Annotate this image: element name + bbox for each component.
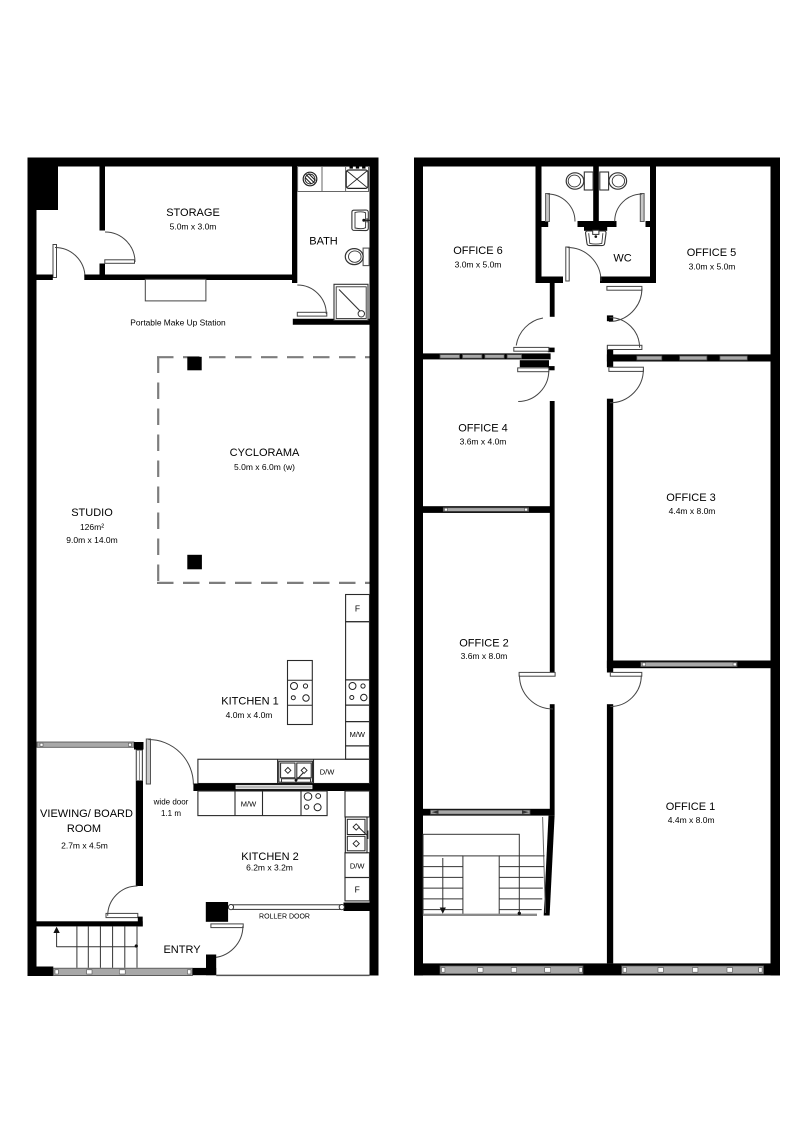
svg-text:WC: WC — [613, 252, 631, 264]
svg-text:OFFICE 4: OFFICE 4 — [458, 423, 508, 435]
svg-text:KITCHEN 1: KITCHEN 1 — [221, 695, 278, 707]
svg-text:ENTRY: ENTRY — [163, 944, 201, 956]
svg-text:M/W: M/W — [350, 730, 366, 739]
svg-text:3.0m x 5.0m: 3.0m x 5.0m — [689, 262, 736, 272]
svg-text:3.6m x 8.0m: 3.6m x 8.0m — [461, 651, 508, 661]
svg-text:Portable Make Up Station: Portable Make Up Station — [130, 318, 226, 328]
svg-text:OFFICE 1: OFFICE 1 — [666, 801, 716, 813]
svg-text:4.4m x 8.0m: 4.4m x 8.0m — [669, 506, 716, 516]
svg-text:STUDIO: STUDIO — [71, 507, 113, 519]
svg-text:BATH: BATH — [309, 236, 338, 248]
svg-text:D/W: D/W — [350, 862, 366, 871]
svg-text:4.0m x 4.0m: 4.0m x 4.0m — [226, 710, 273, 720]
svg-text:M/W: M/W — [241, 800, 257, 809]
svg-text:5.0m x 3.0m: 5.0m x 3.0m — [170, 222, 217, 232]
svg-text:2.7m x 4.5m: 2.7m x 4.5m — [61, 841, 108, 851]
svg-text:6.2m x 3.2m: 6.2m x 3.2m — [246, 863, 293, 873]
svg-text:OFFICE 6: OFFICE 6 — [453, 245, 503, 257]
svg-text:STORAGE: STORAGE — [166, 207, 220, 219]
svg-text:9.0m x 14.0m: 9.0m x 14.0m — [66, 535, 118, 545]
svg-text:OFFICE 5: OFFICE 5 — [687, 247, 737, 259]
svg-text:VIEWING/ BOARD: VIEWING/ BOARD — [40, 808, 133, 820]
svg-text:OFFICE 2: OFFICE 2 — [459, 638, 509, 650]
svg-text:ROLLER DOOR: ROLLER DOOR — [259, 914, 310, 921]
svg-text:F: F — [355, 604, 360, 614]
svg-text:wide door: wide door — [153, 798, 189, 807]
svg-text:126m²: 126m² — [80, 522, 104, 532]
svg-text:1.1 m: 1.1 m — [161, 809, 181, 818]
svg-text:F: F — [355, 885, 360, 895]
svg-text:3.6m x 4.0m: 3.6m x 4.0m — [460, 437, 507, 447]
svg-text:OFFICE 3: OFFICE 3 — [666, 492, 716, 504]
svg-text:CYCLORAMA: CYCLORAMA — [230, 447, 300, 459]
svg-text:KITCHEN 2: KITCHEN 2 — [241, 851, 298, 863]
svg-text:ROOM: ROOM — [67, 823, 101, 835]
svg-text:D/W: D/W — [320, 768, 336, 777]
svg-text:5.0m x 6.0m (w): 5.0m x 6.0m (w) — [234, 462, 295, 472]
svg-text:3.0m x 5.0m: 3.0m x 5.0m — [455, 260, 502, 270]
svg-text:4.4m x 8.0m: 4.4m x 8.0m — [668, 815, 715, 825]
